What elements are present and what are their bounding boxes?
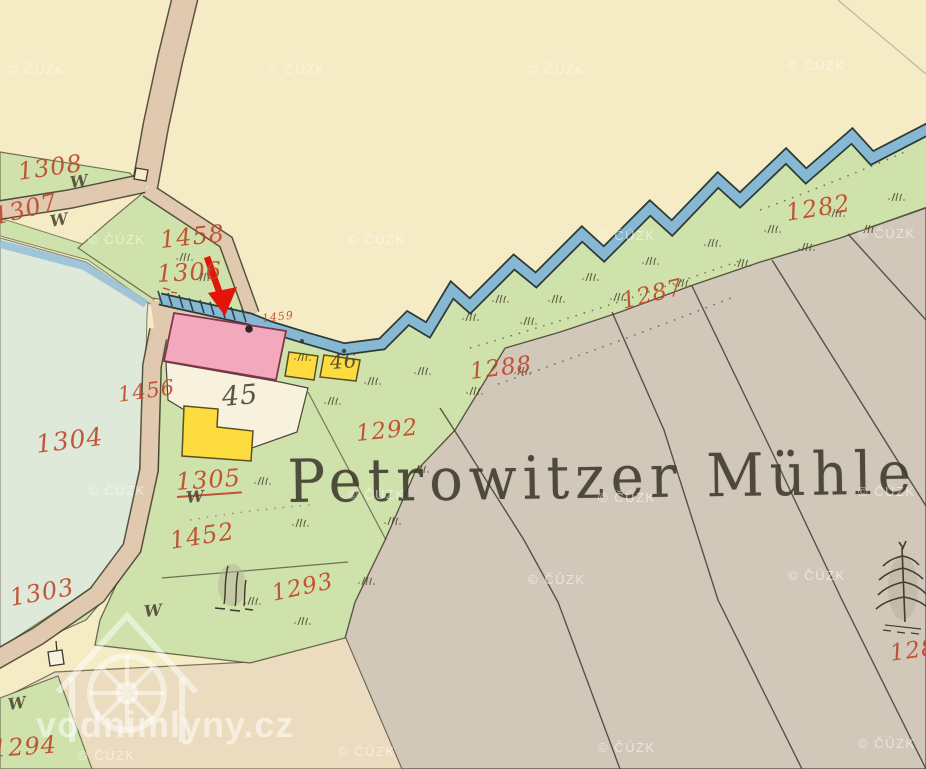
boundary-stone-symbol bbox=[134, 168, 148, 181]
outbuilding-wood-46 bbox=[320, 355, 360, 381]
cadastral-map-drawing bbox=[0, 0, 926, 769]
stream-dot-mark bbox=[342, 349, 346, 353]
map-canvas[interactable]: 1308130714581306145914561304130514521303… bbox=[0, 0, 926, 769]
stream-dot-mark bbox=[300, 339, 304, 343]
mill-wheel-mark bbox=[245, 325, 253, 333]
outbuilding-wood-small bbox=[285, 352, 318, 380]
